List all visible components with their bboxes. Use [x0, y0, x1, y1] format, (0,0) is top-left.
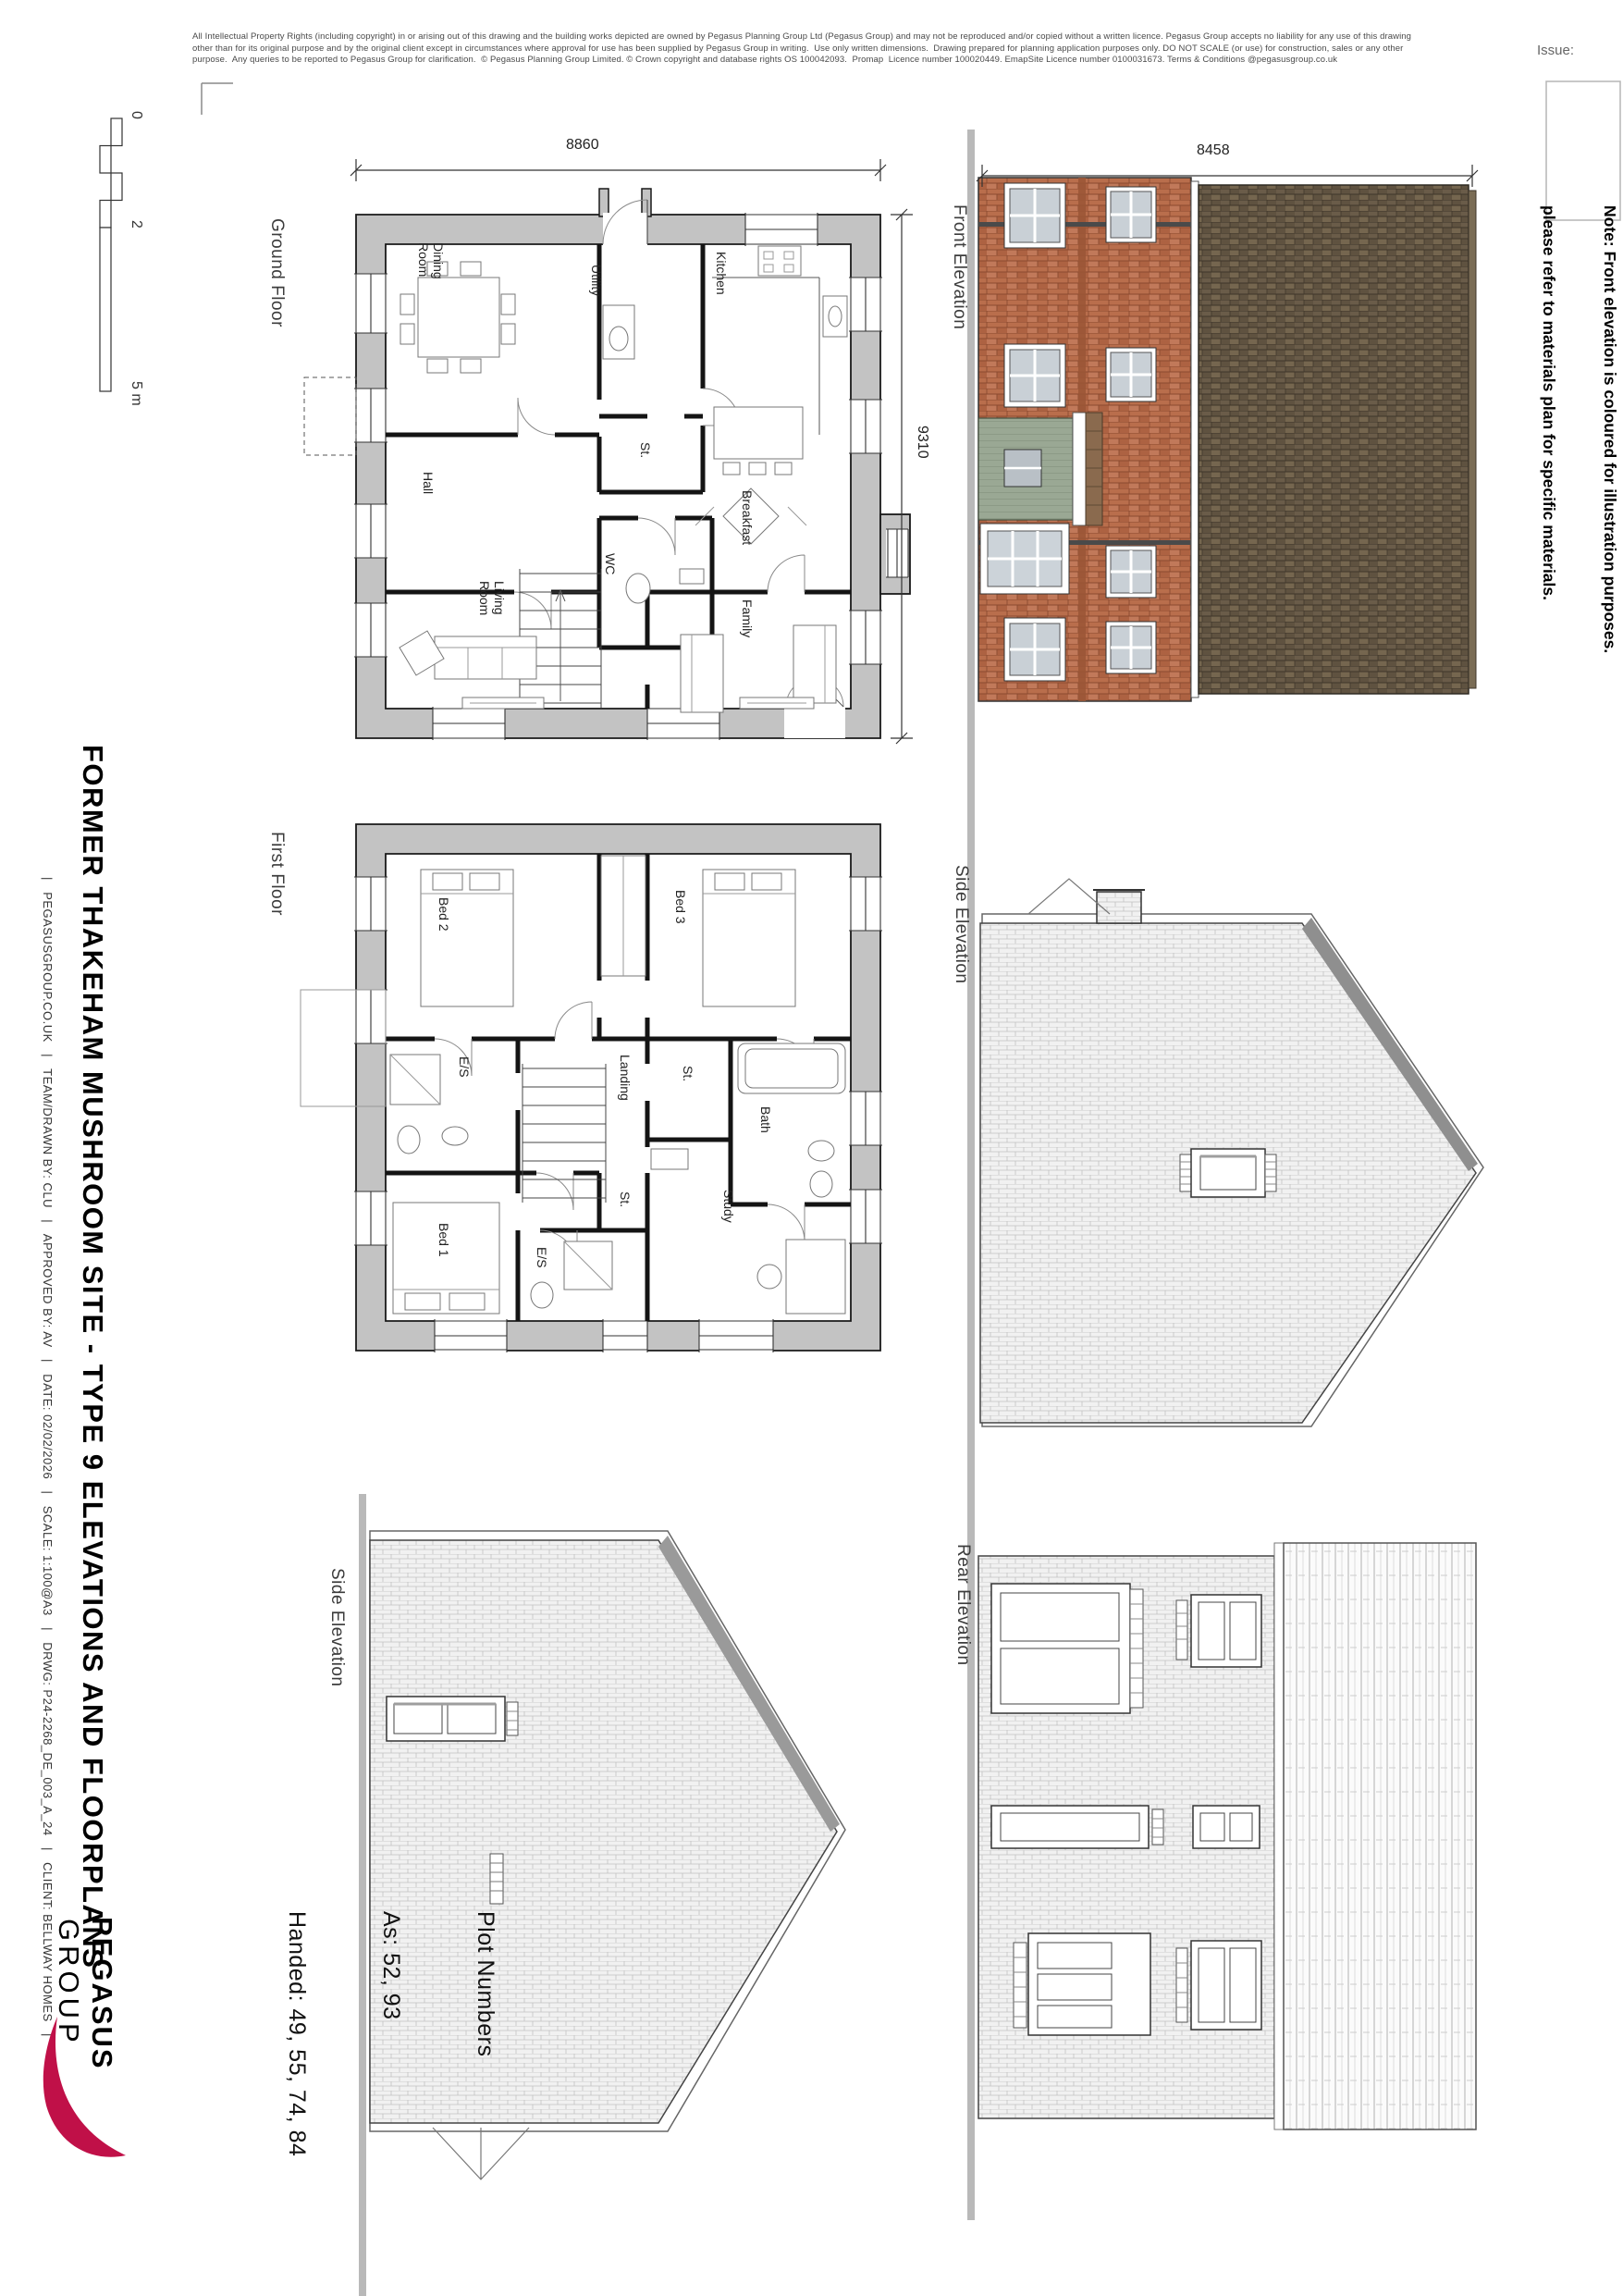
gf-front-door	[603, 200, 647, 246]
room-label-bath: Bath	[758, 1106, 773, 1133]
front-elevation-note: Note: Front elevation is coloured for il…	[1498, 205, 1623, 653]
room-label-es-bottom: E/S	[535, 1247, 549, 1268]
room-label-living: Living Room	[477, 581, 507, 615]
ground-floor-plan	[304, 189, 910, 740]
room-label-bed3: Bed 3	[673, 890, 688, 924]
front-elevation-label: Front Elevation	[949, 204, 969, 329]
gf-fixtures	[400, 246, 847, 712]
ground-floor-label: Ground Floor	[266, 218, 287, 327]
note-line-2: please refer to materials plan for speci…	[1539, 205, 1559, 653]
room-label-dining: Dining Room	[416, 242, 446, 279]
room-label-breakfast: Breakfast	[740, 490, 755, 545]
side-elevation-upper-drawing	[980, 879, 1483, 1426]
room-label-wc: WC	[603, 553, 618, 574]
first-floor-plan	[301, 824, 882, 1352]
first-floor-label: First Floor	[266, 832, 287, 916]
scale-five-label: 5 m	[128, 381, 144, 406]
side-elevation-upper-label: Side Elevation	[951, 865, 971, 983]
plot-numbers-heading: Plot Numbers	[470, 1911, 501, 2156]
elevation-ground-line-left	[359, 1494, 366, 2296]
side-lower-window	[387, 1697, 518, 1741]
room-label-bed2: Bed 2	[436, 897, 451, 932]
issue-label: Issue:	[1537, 43, 1574, 58]
elevation-ground-line-right	[967, 130, 975, 2220]
front-elevation-drawing	[978, 178, 1476, 701]
room-label-es-top: E/S	[457, 1056, 472, 1078]
room-label-bed1: Bed 1	[436, 1223, 451, 1257]
room-label-kitchen: Kitchen	[714, 252, 729, 295]
gf-canopy-dashed	[304, 377, 356, 455]
logo-swoosh-icon	[37, 2017, 129, 2165]
room-label-hall: Hall	[421, 472, 436, 494]
plot-numbers-block: Plot Numbers As: 52, 93 Handed: 49, 55, …	[218, 1911, 564, 2156]
disclaimer-line-3: purpose. Any queries to be reported to P…	[192, 55, 1337, 67]
room-label-store-mid: St.	[618, 1191, 633, 1207]
note-line-1: Note: Front elevation is coloured for il…	[1600, 205, 1620, 653]
room-label-store-gf: St.	[638, 442, 653, 458]
side-upper-window	[1180, 1149, 1276, 1197]
room-label-study: Study	[721, 1190, 736, 1223]
plot-numbers-handed: Handed: 49, 55, 74, 84	[281, 1911, 313, 2156]
room-label-utility: Utility	[589, 265, 604, 296]
drawing-sheet: All Intellectual Property Rights (includ…	[0, 0, 1623, 2296]
disclaimer-line-1: All Intellectual Property Rights (includ…	[192, 31, 1411, 43]
room-label-landing: Landing	[618, 1055, 633, 1101]
scale-bar	[100, 118, 122, 391]
scale-two-label: 2	[128, 220, 144, 228]
room-label-family: Family	[740, 599, 755, 637]
room-label-store-top: St.	[681, 1066, 695, 1081]
gf-height-dimension: 9310	[914, 426, 930, 459]
disclaimer-line-2: other than for its original purpose and …	[192, 43, 1403, 56]
rear-windows	[991, 1584, 1261, 2035]
rear-elevation-drawing	[978, 1543, 1476, 2129]
side-elevation-lower-label: Side Elevation	[326, 1568, 347, 1686]
ff-stairs	[523, 1064, 606, 1203]
sheet-info-line: | PEGASUSGROUP.CO.UK | TEAM/DRAWN BY: CL…	[41, 877, 55, 2037]
front-elevation-width-dimension: 8458	[1197, 142, 1230, 159]
gf-width-dimension: 8860	[566, 137, 599, 154]
rear-elevation-label: Rear Elevation	[953, 1544, 973, 1666]
scale-zero-label: 0	[128, 111, 144, 119]
sheet-title: FORMER THAKEHAM MUSHROOM SITE - TYPE 9 E…	[76, 745, 109, 1969]
plot-numbers-as: As: 52, 93	[375, 1911, 407, 2156]
